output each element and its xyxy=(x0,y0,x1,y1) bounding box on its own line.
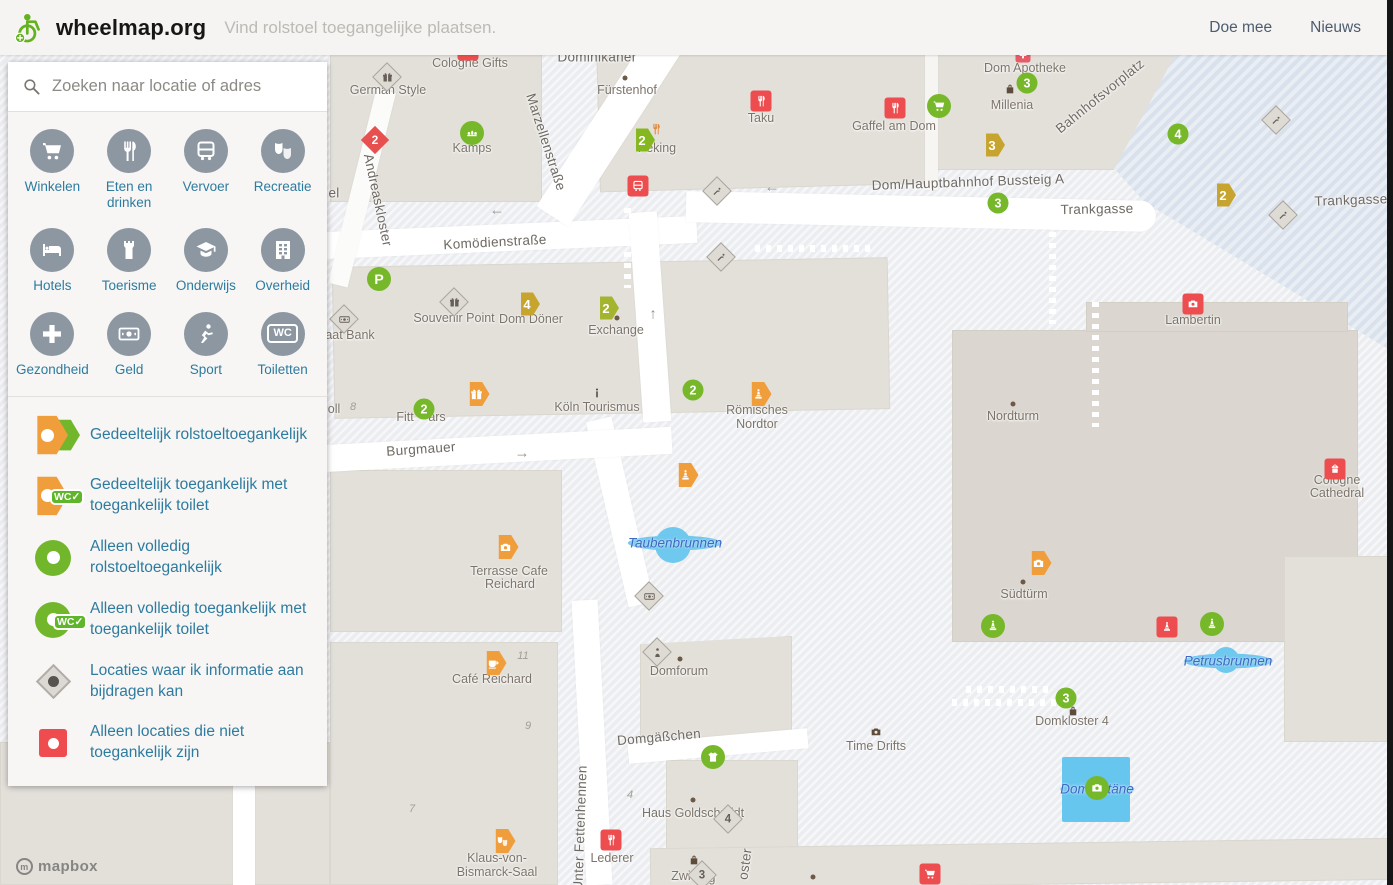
legend-item-full-wc[interactable]: WC✓ Alleen volledig toegankelijk met toe… xyxy=(8,589,327,651)
legend-item-partial-wc[interactable]: WC✓ Gedeeltelijk toegankelijk met toegan… xyxy=(8,465,327,527)
map-building-cathedral-towers xyxy=(1086,302,1348,332)
category-onderwijs[interactable]: Onderwijs xyxy=(168,223,245,299)
window-edge-strip xyxy=(1387,0,1393,885)
app-header: wheelmap.org Vind rolstoel toegangelijke… xyxy=(0,0,1393,55)
category-geld[interactable]: Geld xyxy=(91,307,168,383)
category-sport[interactable]: Sport xyxy=(168,307,245,383)
mapbox-wordmark: mapbox xyxy=(38,858,98,875)
legend-item-partial[interactable]: Gedeeltelijk rolstoeltoegankelijk xyxy=(8,405,327,465)
marker-cluster-2a[interactable]: 2 xyxy=(683,380,704,401)
category-winkelen[interactable]: Winkelen xyxy=(14,124,91,215)
marker-gaffel-am-dom[interactable] xyxy=(885,98,906,119)
nav-link-nieuws[interactable]: Nieuws xyxy=(1310,19,1361,37)
search-icon xyxy=(22,77,41,96)
masks-icon xyxy=(261,129,305,173)
marker-diamond-gray-icon xyxy=(35,664,70,699)
legend: Gedeeltelijk rolstoeltoegankelijk WC✓ Ge… xyxy=(8,396,327,778)
marker-domkloster-3[interactable]: 3 xyxy=(1056,688,1077,709)
water-taubenbrunnen xyxy=(655,527,691,563)
category-label: Recreatie xyxy=(254,179,312,195)
map-building xyxy=(1284,556,1393,742)
legend-label: Alleen volledig toegankelijk met toegank… xyxy=(90,599,315,641)
bed-icon xyxy=(30,228,74,272)
marker-statue-green-1[interactable] xyxy=(981,614,1005,638)
plus-icon xyxy=(30,312,74,356)
category-label: Eten en drinken xyxy=(93,179,166,210)
category-grid: WinkelenEten en drinkenVervoerRecreatieH… xyxy=(8,112,327,386)
marker-exchange-dot xyxy=(615,316,620,321)
legend-label: Alleen locaties die niet toegankelijk zi… xyxy=(90,722,315,764)
wheelmap-logo-icon[interactable] xyxy=(12,10,48,46)
map-crosswalk xyxy=(1092,302,1099,427)
marker-statue-green-2[interactable] xyxy=(1200,612,1224,636)
brand-title[interactable]: wheelmap.org xyxy=(56,15,206,41)
category-label: Toiletten xyxy=(257,362,307,378)
bus-icon xyxy=(184,129,228,173)
marker-tram-stop[interactable] xyxy=(628,176,649,197)
gov-icon xyxy=(261,228,305,272)
marker-shop-cart[interactable] xyxy=(927,94,951,118)
marker-fuerstenhof-dot xyxy=(623,76,628,81)
category-label: Gezondheid xyxy=(16,362,89,378)
legend-item-not-accessible[interactable]: Alleen locaties die niet toegankelijk zi… xyxy=(8,712,327,774)
water-petrusbrunnen xyxy=(1213,647,1239,673)
category-toiletten[interactable]: WCToiletten xyxy=(244,307,321,383)
category-toerisme[interactable]: Toerisme xyxy=(91,223,168,299)
marker-square-red-icon xyxy=(39,729,67,757)
marker-parking[interactable]: P xyxy=(367,267,391,291)
marker-cluster-3b[interactable]: 3 xyxy=(988,193,1009,214)
map-building xyxy=(330,642,558,885)
marker-tshirt-shop[interactable] xyxy=(701,745,725,769)
category-label: Toerisme xyxy=(102,278,157,294)
category-recreatie[interactable]: Recreatie xyxy=(244,124,321,215)
map-crosswalk xyxy=(1049,232,1056,324)
marker-hex-orange-wc-icon: WC✓ xyxy=(26,476,80,516)
marker-suedturm-dot xyxy=(1021,580,1026,585)
category-label: Hotels xyxy=(33,278,71,294)
map-crosswalk xyxy=(755,245,870,252)
category-label: Sport xyxy=(190,362,222,378)
marker-lederer[interactable] xyxy=(601,830,622,851)
category-label: Vervoer xyxy=(183,179,230,195)
marker-hausgoldschmidt-dot xyxy=(691,798,696,803)
marker-statue-red[interactable] xyxy=(1157,617,1178,638)
app-tagline: Vind rolstoel toegangelijke plaatsen. xyxy=(224,18,496,38)
marker-nordturm-dot xyxy=(1011,402,1016,407)
mapbox-icon: m xyxy=(16,858,33,875)
marker-hex-orange-chevron-icon xyxy=(26,415,80,455)
category-overheid[interactable]: Overheid xyxy=(244,223,321,299)
marker-circle-green-wc-icon: WC✓ xyxy=(35,602,71,638)
marker-fontaene-camera[interactable] xyxy=(1085,776,1109,800)
legend-label: Alleen volledig rolstoeltoegankelijk xyxy=(90,537,315,579)
marker-domforum-dot xyxy=(678,657,683,662)
money-icon xyxy=(107,312,151,356)
category-vervoer[interactable]: Vervoer xyxy=(168,124,245,215)
cart-icon xyxy=(30,129,74,173)
marker-millenia[interactable] xyxy=(1004,83,1017,96)
marker-peking-food[interactable] xyxy=(650,123,663,136)
mapbox-logo[interactable]: m mapbox xyxy=(16,858,98,875)
map-crosswalk xyxy=(966,686,1054,693)
search-input[interactable] xyxy=(52,77,313,96)
sport-icon xyxy=(184,312,228,356)
map-building xyxy=(332,257,891,419)
legend-item-unknown[interactable]: Locaties waar ik informatie aan bijdrage… xyxy=(8,651,327,713)
legend-item-full[interactable]: Alleen volledig rolstoeltoegankelijk xyxy=(8,527,327,589)
category-label: Overheid xyxy=(255,278,310,294)
fork-icon xyxy=(107,129,151,173)
grad-icon xyxy=(184,228,228,272)
wc-icon: WC xyxy=(261,312,305,356)
map-crosswalk xyxy=(952,699,1064,706)
legend-label: Gedeeltelijk toegankelijk met toegankeli… xyxy=(90,475,315,517)
castle-icon xyxy=(107,228,151,272)
category-hotels[interactable]: Hotels xyxy=(14,223,91,299)
marker-koeln-tourismus[interactable] xyxy=(591,387,604,400)
marker-kamps[interactable] xyxy=(460,121,484,145)
marker-red-cart[interactable] xyxy=(920,864,941,885)
nav-link-doe-mee[interactable]: Doe mee xyxy=(1209,19,1272,37)
filter-sidebar: WinkelenEten en drinkenVervoerRecreatieH… xyxy=(8,62,327,786)
marker-cluster-3a[interactable]: 3 xyxy=(1017,73,1038,94)
marker-circle-green-icon xyxy=(35,540,71,576)
category-label: Onderwijs xyxy=(176,278,236,294)
marker-lambertin[interactable] xyxy=(1183,294,1204,315)
marker-time-drifts[interactable] xyxy=(870,726,883,739)
marker-taku[interactable] xyxy=(751,91,772,112)
category-gezondheid[interactable]: Gezondheid xyxy=(14,307,91,383)
marker-cologne-cathedral[interactable] xyxy=(1325,459,1346,480)
category-label: Winkelen xyxy=(25,179,81,195)
marker-fitt-cluster-2[interactable]: 2 xyxy=(414,399,435,420)
search-box[interactable] xyxy=(8,62,327,112)
marker-bottom-dot xyxy=(811,875,816,880)
map-crosswalk xyxy=(624,208,631,288)
legend-label: Gedeeltelijk rolstoeltoegankelijk xyxy=(90,425,307,446)
category-label: Geld xyxy=(115,362,144,378)
map-building xyxy=(330,470,562,632)
category-eten-en-drinken[interactable]: Eten en drinken xyxy=(91,124,168,215)
legend-label: Locaties waar ik informatie aan bijdrage… xyxy=(90,661,315,703)
marker-cluster-4a[interactable]: 4 xyxy=(1168,124,1189,145)
